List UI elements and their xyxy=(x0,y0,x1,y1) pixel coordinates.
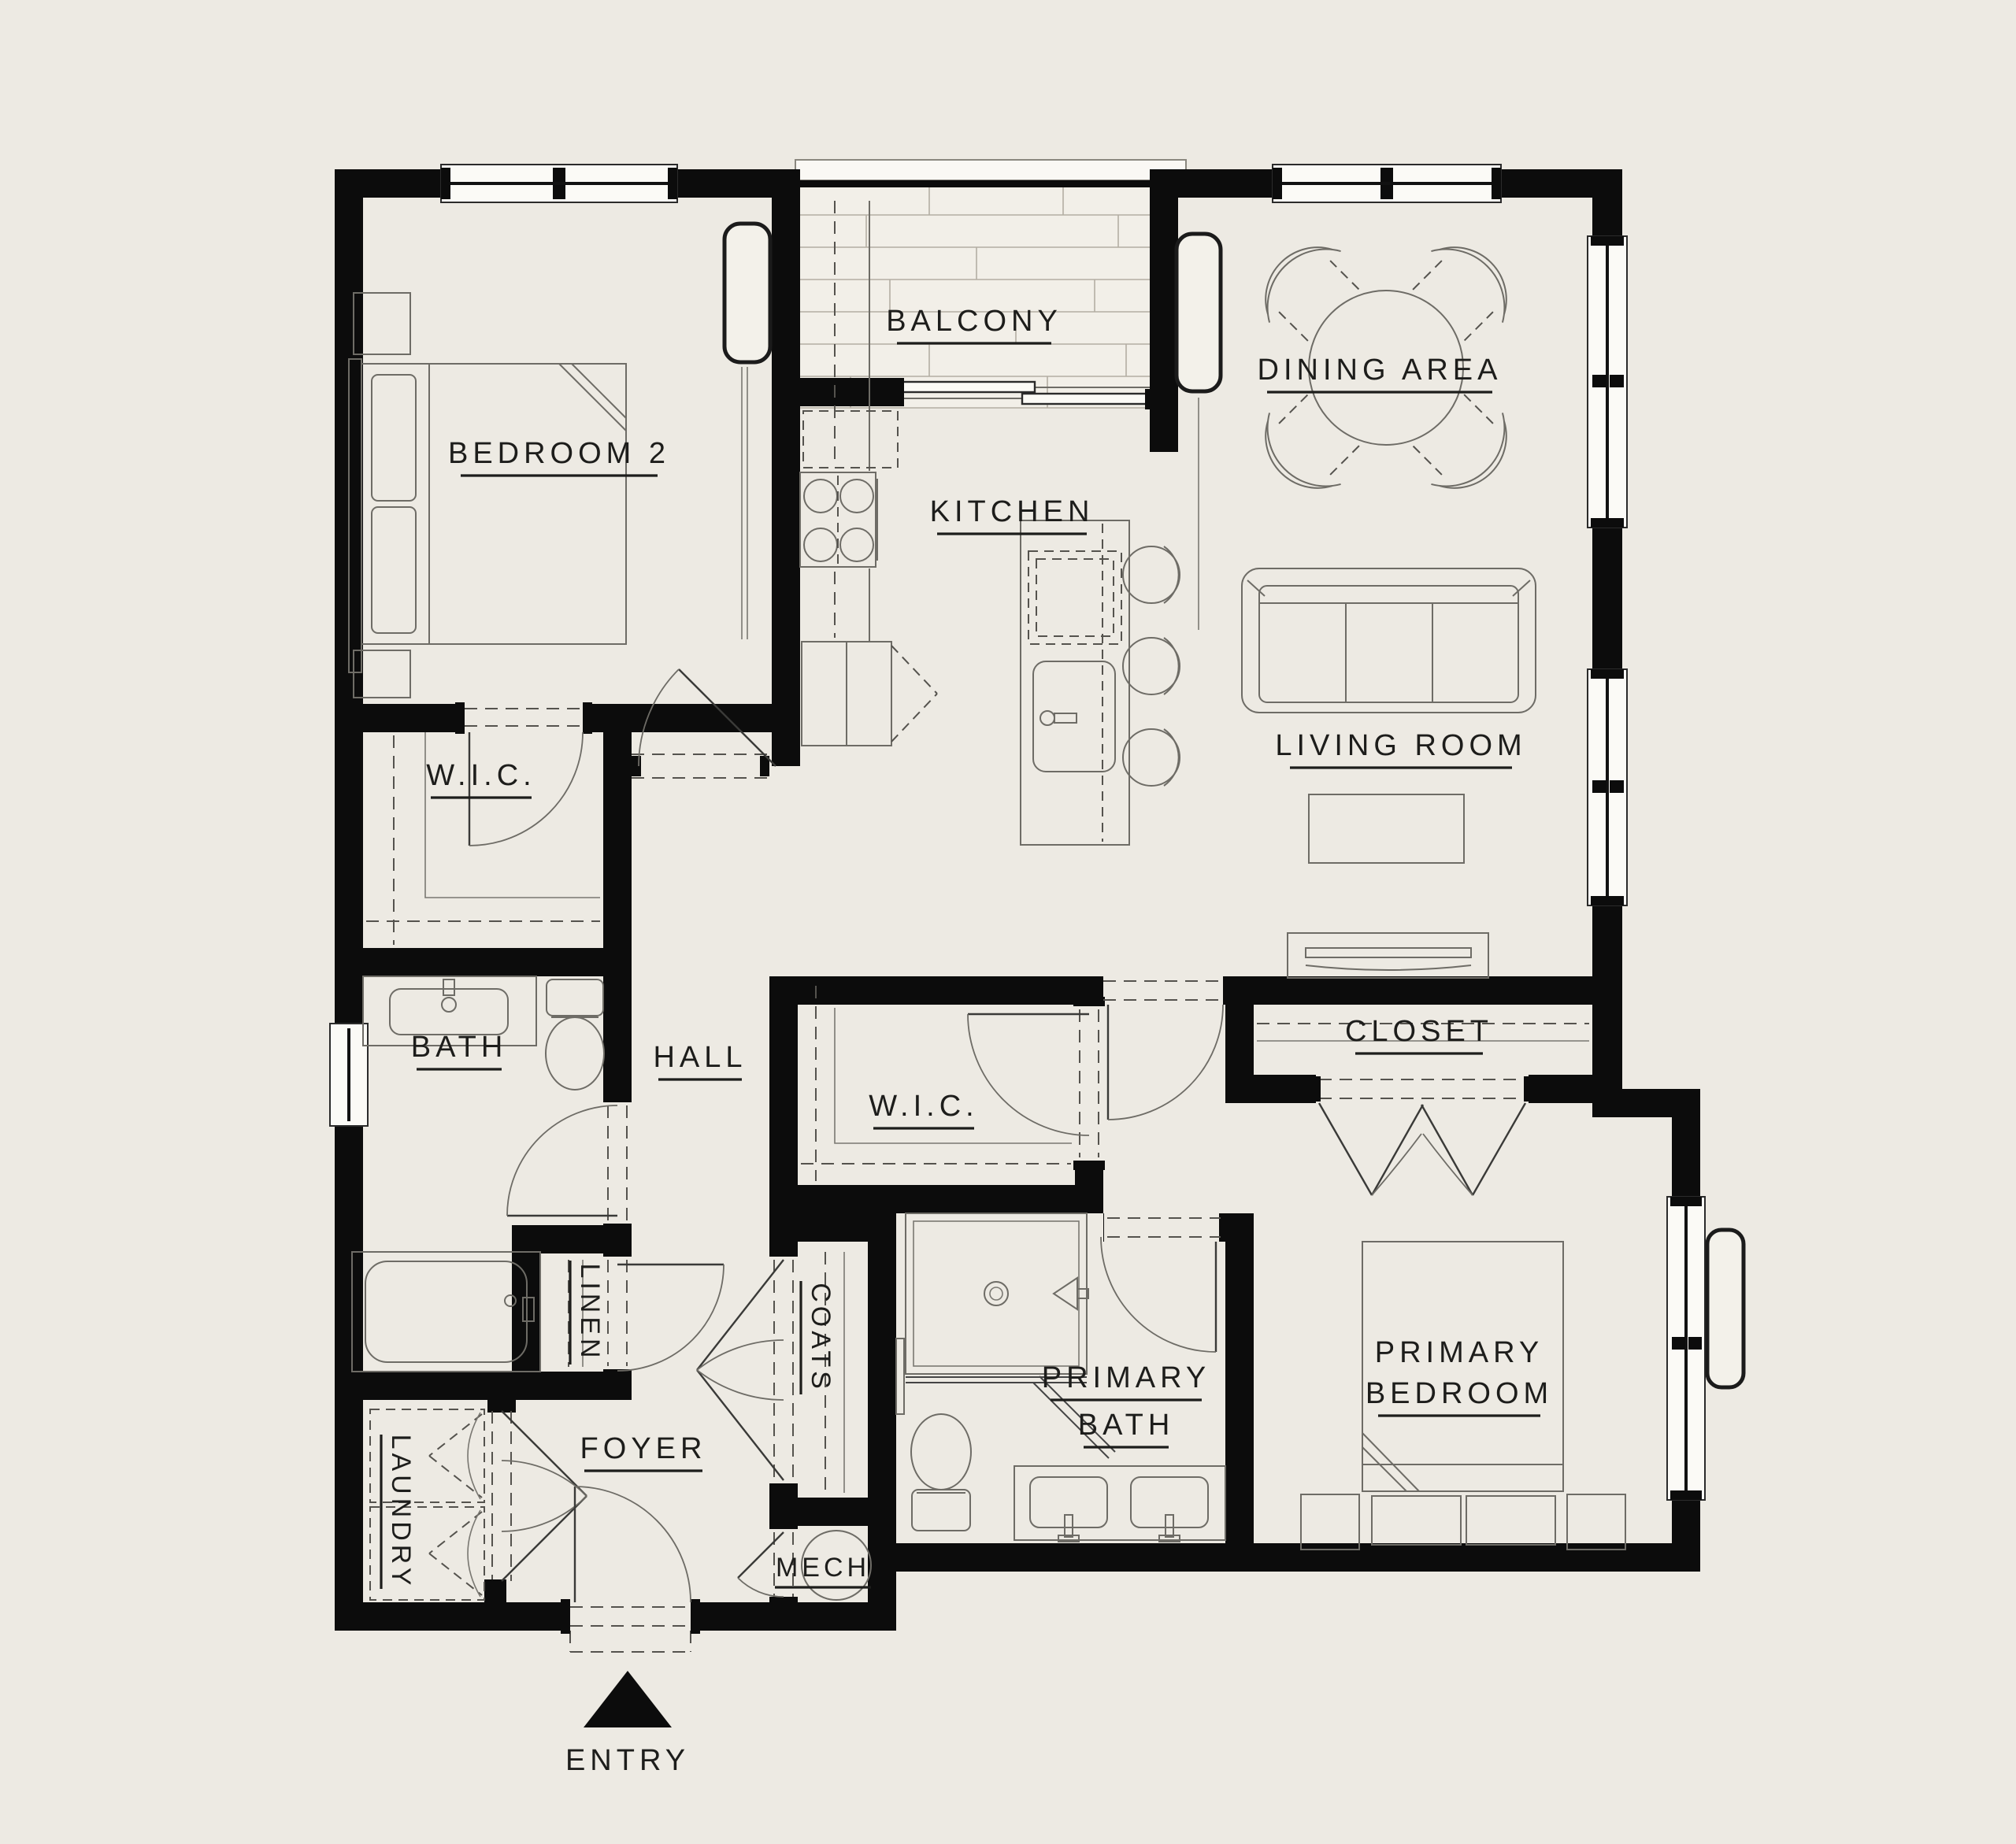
balcony-railing xyxy=(795,160,1186,187)
wall-wic2-top xyxy=(769,976,1103,1005)
window-bath xyxy=(330,1024,368,1126)
wall-laundry-stub xyxy=(487,1400,516,1413)
room-label-wic2: W.I.C. xyxy=(869,1090,978,1123)
room-label-laundry: LAUNDRY xyxy=(386,1435,416,1590)
wall-mech-top xyxy=(769,1498,896,1526)
entry-label: ENTRY xyxy=(565,1744,690,1777)
wall-linen-bottom xyxy=(512,1372,632,1400)
balcony-deck xyxy=(795,160,1186,408)
room-label-foyer: FOYER xyxy=(580,1432,707,1465)
wall-living-bottom xyxy=(1223,976,1622,1005)
room-label-coats-group: COATS xyxy=(801,1281,836,1394)
wall-bath-top xyxy=(335,948,632,976)
window-bench-icon xyxy=(1707,1230,1744,1387)
room-label-coats: COATS xyxy=(806,1283,836,1393)
floor-plan-page: BEDROOM 2 BALCONY DINING AREA KITCHEN LI… xyxy=(0,0,2016,1844)
window-bedroom2 xyxy=(441,165,677,202)
wall-coats-top xyxy=(769,1213,896,1242)
wall-linen-top xyxy=(512,1225,632,1253)
room-label-mech: MECH xyxy=(776,1553,870,1583)
room-label-laundry-group: LAUNDRY xyxy=(381,1435,416,1590)
window-dining-top xyxy=(1273,165,1501,202)
wall-wic2-bottom xyxy=(769,1185,1103,1213)
room-label-primary-bedroom-1: PRIMARY xyxy=(1375,1336,1543,1369)
room-label-dining: DINING AREA xyxy=(1258,354,1503,387)
room-label-primary-bath-1: PRIMARY xyxy=(1042,1361,1210,1394)
room-label-hall: HALL xyxy=(653,1041,747,1074)
room-label-primary-bedroom-2: BEDROOM xyxy=(1366,1377,1553,1410)
room-label-closet: CLOSET xyxy=(1345,1015,1493,1048)
room-label-linen-group: LINEN xyxy=(570,1261,605,1364)
wall-bedroom2-right xyxy=(772,169,800,766)
wall-balcony-south xyxy=(800,378,902,406)
room-label-primary-bath-2: BATH xyxy=(1078,1409,1175,1442)
window-dining-right xyxy=(1588,236,1627,528)
window-living-right xyxy=(1588,669,1627,905)
room-label-bath: BATH xyxy=(411,1031,508,1064)
room-label-living: LIVING ROOM xyxy=(1275,729,1526,762)
wall-bath-bottom xyxy=(335,1372,540,1400)
wall-primary-bath-right xyxy=(1225,1213,1254,1543)
wall-balcony-right xyxy=(1150,169,1178,452)
window-primary-bedroom xyxy=(1667,1197,1705,1500)
room-label-balcony: BALCONY xyxy=(886,305,1062,338)
floor-plan-drawing: BEDROOM 2 BALCONY DINING AREA KITCHEN LI… xyxy=(0,0,2016,1844)
room-label-bedroom2: BEDROOM 2 xyxy=(448,437,670,470)
wall-bottom-right xyxy=(868,1543,1700,1572)
room-label-kitchen: KITCHEN xyxy=(930,495,1095,528)
room-label-wic1: W.I.C. xyxy=(426,759,535,792)
room-label-linen: LINEN xyxy=(575,1263,605,1361)
